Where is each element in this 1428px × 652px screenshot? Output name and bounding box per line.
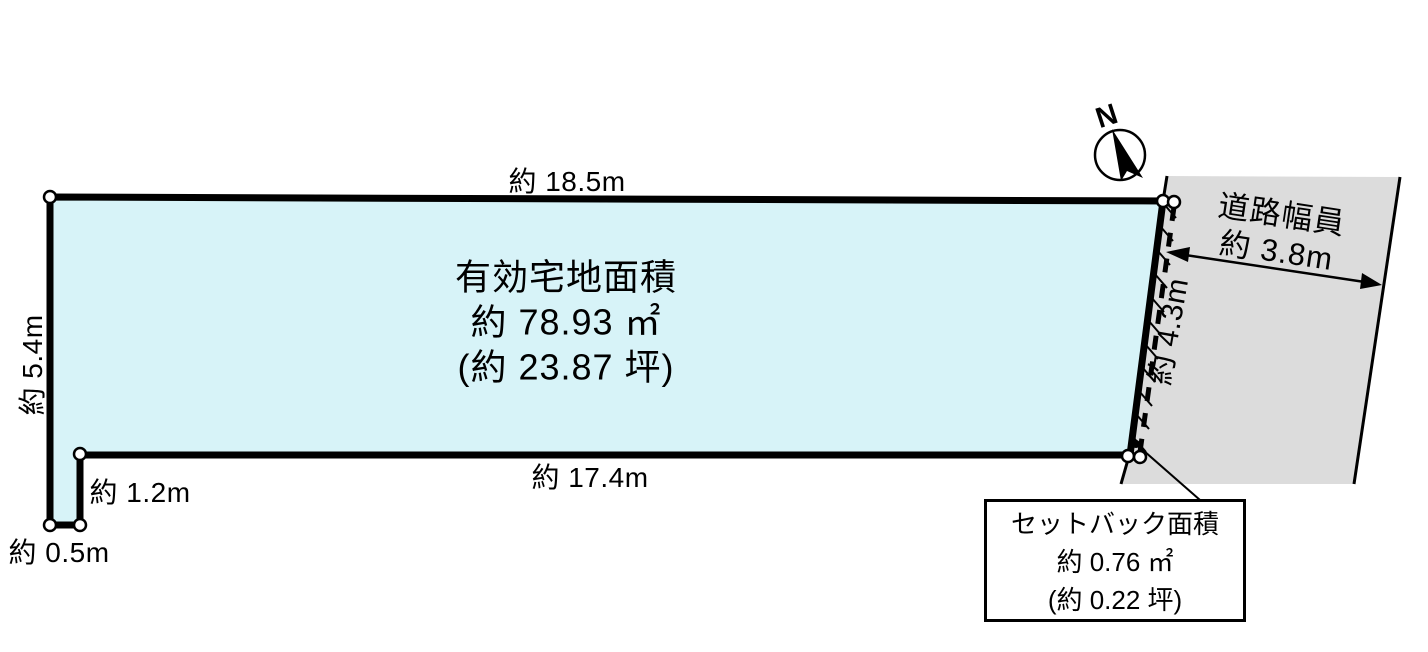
parcel-area-sqm: 約 78.93 ㎡: [455, 300, 677, 345]
boundary-point: [44, 191, 56, 203]
setback-info-box: セットバック面積 約 0.76 ㎡ (約 0.22 坪): [984, 499, 1246, 622]
compass-icon: [1095, 129, 1145, 181]
dimension-top: 約 18.5m: [508, 160, 625, 200]
dimension-notch-bottom: 約 0.5m: [8, 531, 109, 571]
boundary-point: [44, 519, 56, 531]
boundary-point: [74, 448, 86, 460]
parcel-area-tsubo: (約 23.87 坪): [455, 345, 677, 390]
setback-sqm: 約 0.76 ㎡: [987, 543, 1243, 581]
parcel-area-title: 有効宅地面積: [455, 255, 677, 300]
dimension-notch-vertical: 約 1.2m: [89, 471, 190, 511]
dimension-left: 約 5.4m: [11, 314, 51, 415]
dimension-bottom: 約 17.4m: [531, 456, 648, 496]
setback-leader-dot: [1132, 440, 1140, 448]
boundary-point: [1122, 450, 1134, 462]
boundary-point: [74, 519, 86, 531]
setback-title: セットバック面積: [987, 505, 1243, 543]
boundary-point: [1168, 196, 1180, 208]
parcel-area-label: 有効宅地面積 約 78.93 ㎡ (約 23.87 坪): [455, 255, 677, 390]
setback-tsubo: (約 0.22 坪): [987, 581, 1243, 619]
boundary-point: [1134, 451, 1146, 463]
land-plot-diagram: 約 18.5m 約 17.4m 約 5.4m 約 4.3m 約 1.2m 約 0…: [0, 0, 1428, 652]
